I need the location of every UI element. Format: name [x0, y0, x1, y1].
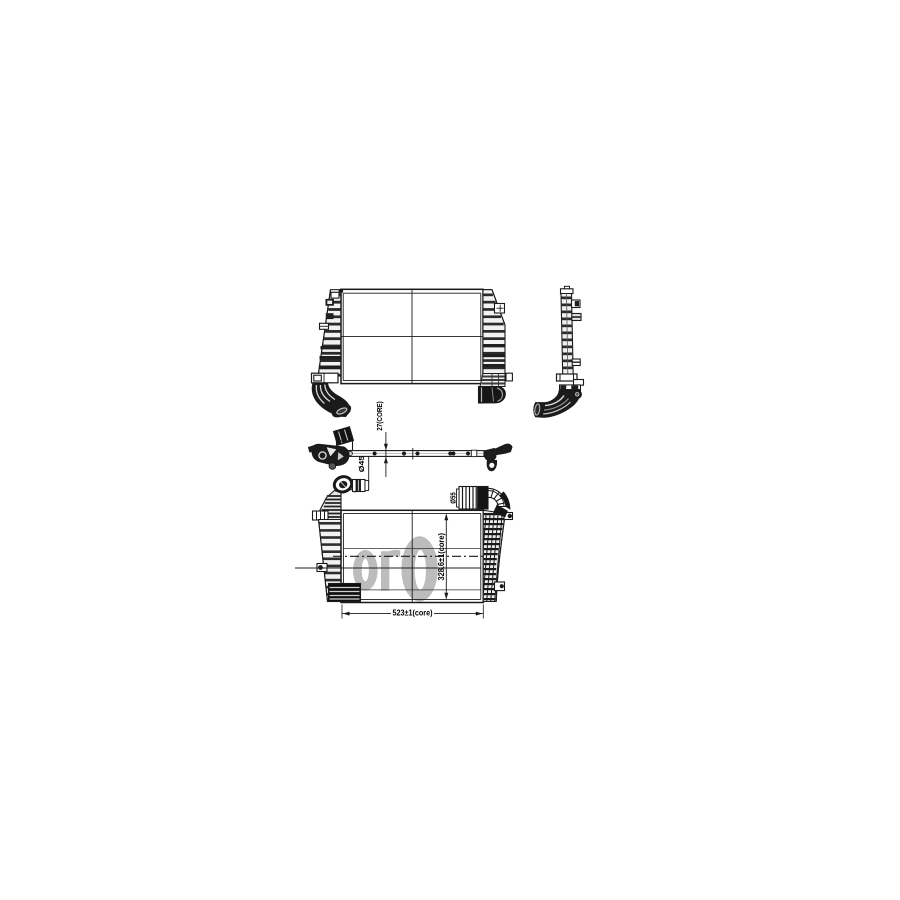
- svg-text:Ø45: Ø45: [357, 455, 366, 472]
- svg-text:523±1(core): 523±1(core): [393, 608, 433, 617]
- svg-text:Ø55: Ø55: [451, 492, 458, 504]
- svg-text:328.6±1(core): 328.6±1(core): [437, 533, 446, 581]
- svg-text:27(CORE): 27(CORE): [375, 401, 384, 431]
